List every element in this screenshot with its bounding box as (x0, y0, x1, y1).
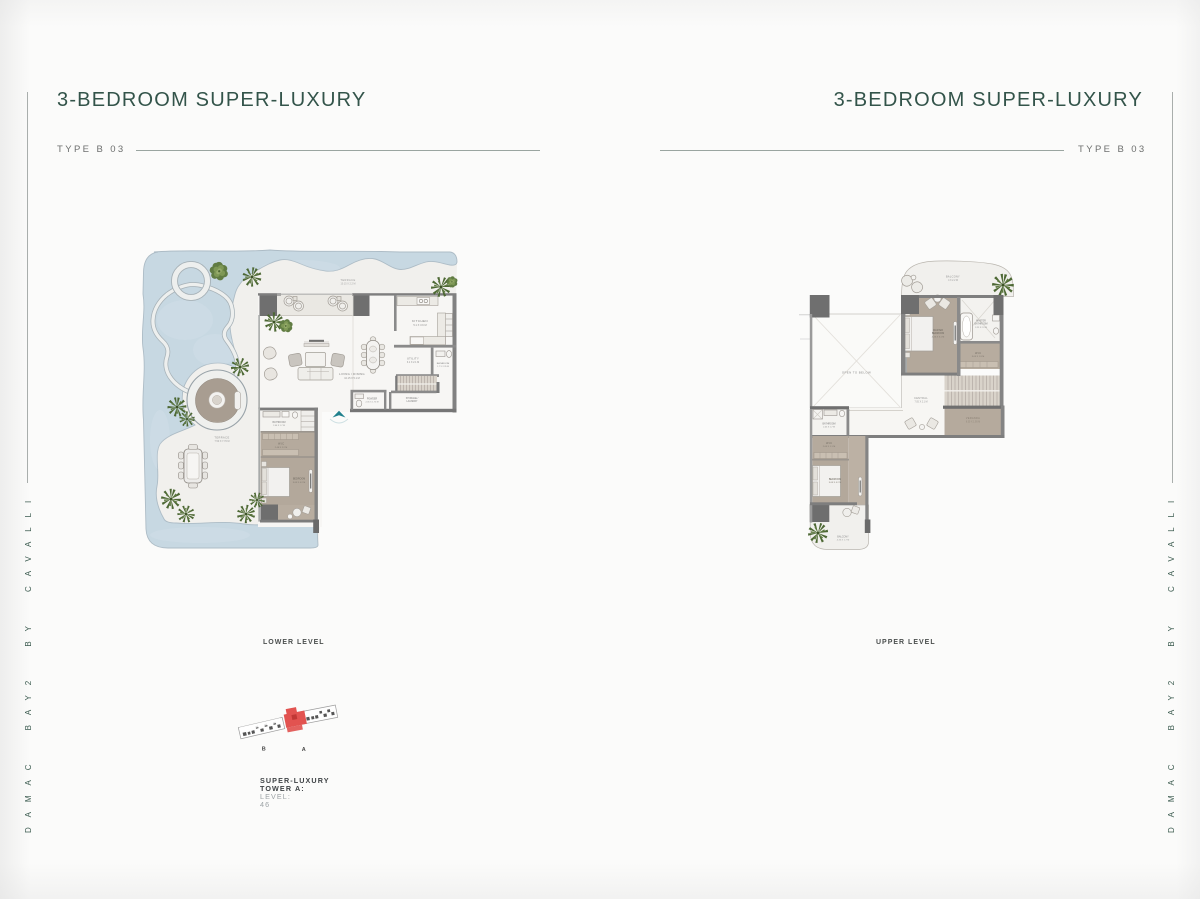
svg-text:3.65 X 4.2 M: 3.65 X 4.2 M (829, 482, 842, 484)
svg-text:BATHROOM: BATHROOM (822, 423, 835, 426)
svg-text:TERRACE: TERRACE (340, 278, 355, 282)
svg-text:KITCHEN: KITCHEN (412, 319, 428, 323)
svg-text:3.05 X 1.9 M: 3.05 X 1.9 M (972, 356, 985, 358)
svg-text:BEDROOM: BEDROOM (932, 332, 944, 335)
svg-text:B: B (262, 747, 266, 753)
svg-text:POWDER: POWDER (367, 399, 378, 401)
svg-text:BALCONY: BALCONY (837, 536, 849, 539)
svg-text:3.65 X 4.2 M: 3.65 X 4.2 M (293, 482, 306, 484)
svg-text:LIVING / DINING: LIVING / DINING (339, 372, 365, 376)
svg-text:2.65 X 1.1 M: 2.65 X 1.1 M (823, 446, 836, 448)
svg-text:2.45 X 1.7 M: 2.45 X 1.7 M (823, 427, 835, 429)
svg-text:VERANDA: VERANDA (966, 417, 980, 420)
svg-text:W.I.C: W.I.C (278, 443, 284, 446)
svg-text:MASTER: MASTER (976, 320, 986, 323)
svg-text:BATHROOM: BATHROOM (272, 421, 285, 424)
svg-text:7.05 X 2.1 M: 7.05 X 2.1 M (914, 401, 927, 403)
svg-text:W.I.C: W.I.C (975, 352, 981, 355)
svg-text:BATHROOM: BATHROOM (974, 323, 987, 326)
svg-text:3.25 X 2.9 M: 3.25 X 2.9 M (975, 327, 987, 329)
svg-text:STORAGE /: STORAGE / (406, 397, 419, 400)
svg-text:W.I.C: W.I.C (826, 442, 832, 445)
svg-text:BATHROOM: BATHROOM (437, 362, 450, 365)
svg-text:5.1 X 3.6 M: 5.1 X 3.6 M (413, 323, 426, 327)
svg-text:3.1 X 2.1 M: 3.1 X 2.1 M (407, 361, 419, 364)
svg-text:4 X 2.2 M: 4 X 2.2 M (948, 280, 958, 282)
svg-text:10.15 X 5.1 M: 10.15 X 5.1 M (344, 377, 360, 380)
svg-text:4.35 X 1.7 M: 4.35 X 1.7 M (837, 540, 850, 542)
svg-text:6.35 X 1.95 M: 6.35 X 1.95 M (966, 421, 980, 423)
svg-text:LAUNDRY: LAUNDRY (407, 400, 418, 403)
svg-text:BALCONY: BALCONY (946, 276, 960, 279)
svg-text:2.46 X 2.2 M: 2.46 X 2.2 M (275, 447, 288, 449)
svg-text:2.46 X 1.7 M: 2.46 X 1.7 M (273, 425, 285, 427)
svg-text:CENTRAL: CENTRAL (914, 397, 928, 400)
svg-text:10.15 X 2.2 M: 10.15 X 2.2 M (341, 283, 356, 286)
svg-text:BEDROOM: BEDROOM (293, 478, 305, 481)
svg-text:UTILITY: UTILITY (407, 357, 419, 361)
svg-text:BEDROOM: BEDROOM (829, 478, 841, 481)
svg-text:1.7 X 2.35 M: 1.7 X 2.35 M (437, 366, 449, 368)
svg-text:OPEN TO BELOW: OPEN TO BELOW (842, 371, 871, 375)
svg-text:2.05 X 1.75 M: 2.05 X 1.75 M (366, 402, 379, 404)
svg-text:TERRACE: TERRACE (214, 436, 229, 440)
svg-text:7.50 X 7.70 M: 7.50 X 7.70 M (215, 440, 230, 443)
svg-text:A: A (302, 747, 306, 753)
svg-text:4.25 X 3.1 M: 4.25 X 3.1 M (932, 336, 945, 338)
